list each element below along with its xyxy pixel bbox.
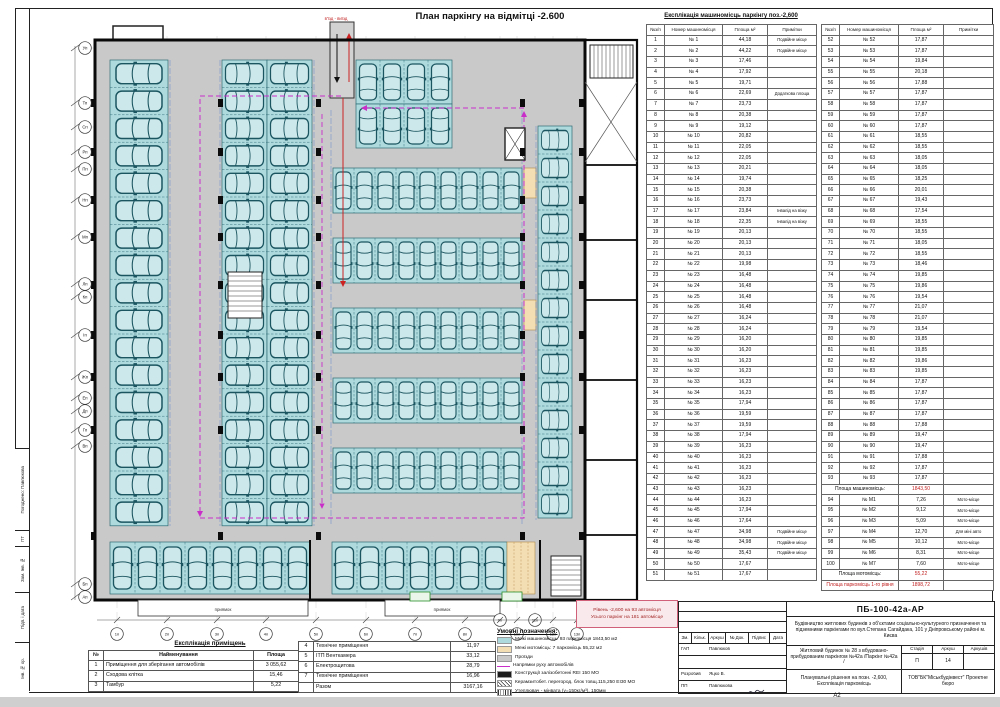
organization: ТОВ"БК"Міськбудінвест" Проектне бюро (901, 670, 994, 693)
table-row: 70№ 7018,55 (822, 228, 994, 239)
table-row: 27№ 2716,24 (647, 313, 817, 324)
table-row: 6Електрощитова28,79 (299, 662, 496, 672)
table-row: 73№ 7318,46 (822, 260, 994, 271)
table-row: 54№ 5419,84 (822, 57, 994, 68)
table-row: 96№ М35,09Мото-місце (822, 516, 994, 527)
table-row: 35№ 3517,94 (647, 399, 817, 410)
table-row: 37№ 3719,59 (647, 420, 817, 431)
side-stamp-cell: ПТ (15, 530, 29, 547)
legend-title: Умовні позначення: (497, 628, 682, 635)
table-row: 1№ 144,18Подвійне місце (647, 35, 817, 46)
table-row: 58№ 5817,87 (822, 99, 994, 110)
table-row: 94№ М17,26Мото-місце (822, 495, 994, 506)
table-row: 78№ 7821,07 (822, 313, 994, 324)
table-row: 14№ 1419,74 (647, 174, 817, 185)
legend-item: Межі мотомісць: 7 паркомісць 55,22 м2 (497, 646, 682, 653)
legend-item: Напрямки руху автомобілів (497, 664, 682, 669)
table-row: 49№ 4935,43Подвійне місце (647, 548, 817, 559)
role-label: Розробив (681, 672, 709, 681)
table-row: 97№ М412,70Для міні авто (822, 527, 994, 538)
table-row: 87№ 8717,87 (822, 409, 994, 420)
table-row: 65№ 6518,25 (822, 174, 994, 185)
table-row: 26№ 2616,48 (647, 302, 817, 313)
role-name: Павлюков (709, 647, 747, 656)
table-row: Площа мотомісць:55,22 (822, 570, 994, 581)
object-name: Житловий будинок № 28 з вбудовано-прибуд… (786, 646, 901, 670)
legend-item-text: Проїзди (515, 656, 533, 661)
table-row: 74№ 7419,85 (822, 270, 994, 281)
table-row: 57№ 5717,87 (822, 89, 994, 100)
table-row: 34№ 3416,23 (647, 388, 817, 399)
table-row: 28№ 2816,24 (647, 324, 817, 335)
table-row: №НайменуванняПлоща (89, 651, 299, 661)
table-row: 4№ 417,92 (647, 67, 817, 78)
table-row: 30№ 3016,20 (647, 345, 817, 356)
table-row: 93№ 9317,87 (822, 473, 994, 484)
table-row: Площа машиномісць:1843,50 (822, 484, 994, 495)
table-row: 36№ 3619,59 (647, 409, 817, 420)
table-row: 88№ 8817,88 (822, 420, 994, 431)
table-row: 2№ 244,22Подвійне місце (647, 46, 817, 57)
legend-item-text: Конструкції залізобетонні REI 150 МО (515, 672, 599, 677)
parking-table-part1: №з/пНомер машиномісцяПлоща м²Примітки1№ … (646, 24, 817, 581)
moto-swatch-icon (497, 646, 512, 653)
table-row: 77№ 7721,07 (822, 302, 994, 313)
table-row: 24№ 2416,48 (647, 281, 817, 292)
stamp-header: Кільк. (691, 633, 708, 644)
table-row: 64№ 6418,05 (822, 163, 994, 174)
table-row: 55№ 5520,18 (822, 67, 994, 78)
table-row: 100№ М77,60Мото-місце (822, 559, 994, 570)
stage-value: П (901, 654, 932, 670)
side-stamp-cell: Погоджено: Павлюкова (15, 448, 29, 531)
rooms-table-part1: №НайменуванняПлоща1Приміщення для зберіг… (88, 650, 299, 692)
table-row: 22№ 2219,98 (647, 260, 817, 271)
table-row: 33№ 3316,23 (647, 377, 817, 388)
table-row: 62№ 6218,55 (822, 142, 994, 153)
table-row: 61№ 6118,55 (822, 131, 994, 142)
legend-item-text: Керамзитобет. перегород. блок товщ.115,2… (515, 681, 635, 686)
sheet-number: 14 (932, 654, 963, 670)
table-row: 3№ 317,46 (647, 57, 817, 68)
table-row: 82№ 8219,86 (822, 356, 994, 367)
table-row: 76№ 7619,54 (822, 292, 994, 303)
table-row: 21№ 2120,13 (647, 249, 817, 260)
legend-item: Межі машиномісць: 93 паркомісця 1843,50 … (497, 637, 682, 644)
table-row: Разом3167,16 (299, 682, 496, 692)
stamp-header: Зм. (679, 633, 691, 644)
legend-item: Утеплювач - мінвата (γ=150кг/м³), 150мм (497, 689, 682, 696)
stamp-header: Підпис (748, 633, 769, 644)
parking-table-title: Експлікація машиномісць паркінгу поз.-2,… (645, 13, 817, 19)
level-line-1: Рівень -2,600 на 93 автомісця (593, 608, 660, 613)
table-row: 53№ 5317,87 (822, 46, 994, 57)
table-row: 48№ 4834,98Подвійне місце (647, 538, 817, 549)
table-row: 80№ 8019,85 (822, 334, 994, 345)
arrow-swatch-icon (497, 666, 510, 667)
table-row: 38№ 3817,94 (647, 431, 817, 442)
table-row: 20№ 2020,13 (647, 238, 817, 249)
title-block: ПБ-100-42а-АР Будівництво житлових будин… (678, 601, 995, 694)
table-row: 29№ 2916,20 (647, 334, 817, 345)
table-row: 6№ 622,69Додаткова площа (647, 89, 817, 100)
table-row: 10№ 1020,82 (647, 131, 817, 142)
table-row: 39№ 3916,23 (647, 441, 817, 452)
table-row: 72№ 7218,55 (822, 249, 994, 260)
table-row: 4Технічне приміщення11,97 (299, 642, 496, 652)
table-row: 63№ 6318,05 (822, 153, 994, 164)
signature-rows: ГАППавлюковРозробивЯцко В.ПППавлюкова (679, 644, 786, 693)
table-row: 7№ 723,73 (647, 99, 817, 110)
legend: Умовні позначення: Межі машиномісць: 93 … (497, 628, 682, 698)
table-row: 47№ 4734,98Подвійне місце (647, 527, 817, 538)
legend-item-text: Межі машиномісць: 93 паркомісця 1843,50 … (515, 638, 617, 643)
table-row: 52№ 5217,87 (822, 35, 994, 46)
concrete-swatch-icon (497, 671, 512, 678)
drawing-sheet-page: { "title": "План паркінгу на відмітці -2… (0, 0, 1000, 707)
table-row: 68№ 6817,54 (822, 206, 994, 217)
block-swatch-icon (497, 680, 512, 687)
table-row: №з/пНомер машиномісцяПлоща м²Примітки (822, 25, 994, 36)
document-code: ПБ-100-42а-АР (786, 602, 994, 617)
stamp-header-row: Зм.Кільк.Аркуш№ Док.ПідписДата (679, 633, 786, 644)
side-stamp-cell: Зам. Інв. № (15, 546, 29, 593)
table-row: 25№ 2516,48 (647, 292, 817, 303)
table-row: 60№ 6017,87 (822, 121, 994, 132)
table-row: 46№ 4617,64 (647, 516, 817, 527)
table-row: 45№ 4517,94 (647, 505, 817, 516)
role-label: ГАП (681, 647, 709, 656)
table-row: 40№ 4016,23 (647, 452, 817, 463)
table-row: 8№ 820,38 (647, 110, 817, 121)
table-row: 3Тамбур5,22 (89, 681, 299, 691)
legend-item-text: Напрямки руху автомобілів (513, 664, 574, 669)
table-row: 23№ 2316,48 (647, 270, 817, 281)
table-row: 31№ 3116,23 (647, 356, 817, 367)
page-edge (0, 697, 1000, 707)
table-row: 89№ 8919,47 (822, 431, 994, 442)
table-row: 5№ 519,71 (647, 78, 817, 89)
table-row: 15№ 1520,38 (647, 185, 817, 196)
table-row: №з/пНомер машиномісцяПлоща м²Примітки (647, 25, 817, 36)
legend-item: Проїзди (497, 655, 682, 662)
stamp-header: Дата (769, 633, 786, 644)
table-row: 12№ 1222,05 (647, 153, 817, 164)
table-row: 19№ 1920,13 (647, 228, 817, 239)
level-line-2: Усього паркінг на 181 автомісце (591, 615, 663, 620)
table-row: 85№ 8517,87 (822, 388, 994, 399)
table-row: 16№ 1623,73 (647, 196, 817, 207)
table-row: 11№ 1122,05 (647, 142, 817, 153)
table-row: 2Сходова клітка15,46 (89, 671, 299, 681)
parking-table-part2: №з/пНомер машиномісцяПлоща м²Примітки52№… (821, 24, 994, 591)
project-description: Будівництво житлових будинків з об'єктам… (786, 617, 994, 646)
table-row: 43№ 4316,23 (647, 484, 817, 495)
stamp-header: Аркуш (708, 633, 725, 644)
rooms-table-part2: 4Технічне приміщення11,975ІТП Венткамера… (298, 641, 496, 693)
table-row: 75№ 7519,86 (822, 281, 994, 292)
aisle-swatch-icon (497, 655, 512, 662)
table-row: 7Технічне приміщення16,96 (299, 672, 496, 682)
table-row: 41№ 4116,23 (647, 463, 817, 474)
legend-item-text: Межі мотомісць: 7 паркомісць 55,22 м2 (515, 647, 602, 652)
table-row: 91№ 9117,88 (822, 452, 994, 463)
table-row: 69№ 6918,55 (822, 217, 994, 228)
table-row: 51№ 5117,67 (647, 570, 817, 581)
table-row: 59№ 5917,87 (822, 110, 994, 121)
table-row: 44№ 4416,23 (647, 495, 817, 506)
insul-swatch-icon (497, 689, 512, 696)
table-row: Площа паркомісць 1-го рівня1898,72 (822, 580, 994, 591)
table-row: 79№ 7919,54 (822, 324, 994, 335)
plan-title: План паркінгу на відмітці -2.600 (355, 11, 625, 22)
table-row: 18№ 1822,35Інвалід на візку (647, 217, 817, 228)
table-row: 66№ 6620,01 (822, 185, 994, 196)
sheet-content: Планувальні рішення на позн. -2,600, Екс… (786, 670, 901, 693)
legend-item-text: Утеплювач - мінвата (γ=150кг/м³), 150мм (515, 690, 606, 695)
table-row: 50№ 5017,67 (647, 559, 817, 570)
role-name: Павлюкова (709, 684, 747, 693)
table-row: 9№ 919,12 (647, 121, 817, 132)
stamp-header: № Док. (725, 633, 748, 644)
table-row: 56№ 5617,88 (822, 78, 994, 89)
table-row: 67№ 6719,43 (822, 196, 994, 207)
table-row: 13№ 1320,21 (647, 163, 817, 174)
level-summary-box: Рівень -2,600 на 93 автомісця Усього пар… (576, 600, 678, 628)
role-label: ПП (681, 684, 709, 693)
table-row: 32№ 3216,23 (647, 367, 817, 378)
table-row: 92№ 9217,87 (822, 463, 994, 474)
table-row: 1Приміщення для зберігання автомобілів3 … (89, 661, 299, 671)
table-row: 5ІТП Венткамера33,12 (299, 652, 496, 662)
table-row: 42№ 4216,23 (647, 473, 817, 484)
table-row: 81№ 8119,85 (822, 345, 994, 356)
stage-label: Стадія (901, 646, 932, 654)
table-row: 99№ М68,31Мото-місце (822, 548, 994, 559)
sheets-label: Аркушів (963, 646, 994, 654)
rooms-table-title: Експлікація приміщень (110, 640, 310, 647)
table-row: 86№ 8617,87 (822, 399, 994, 410)
table-row: 71№ 7118,05 (822, 238, 994, 249)
legend-item: Керамзитобет. перегород. блок товщ.115,2… (497, 680, 682, 687)
sheets-count (963, 654, 994, 670)
stall-swatch-icon (497, 637, 512, 644)
role-name: Яцко В. (709, 672, 747, 681)
side-stamp-cell: Підп. і дата (15, 592, 29, 643)
table-row: 98№ М510,12Мото-місце (822, 538, 994, 549)
table-row: 95№ М29,12Мото-місце (822, 505, 994, 516)
table-row: 17№ 1723,84Інвалід на візку (647, 206, 817, 217)
table-row: 90№ 9019,47 (822, 441, 994, 452)
legend-item: Конструкції залізобетонні REI 150 МО (497, 671, 682, 678)
sheet-label: Аркуш (932, 646, 963, 654)
table-row: 83№ 8319,85 (822, 367, 994, 378)
signature-icon (747, 683, 767, 693)
table-row: 84№ 8417,87 (822, 377, 994, 388)
side-stamp-cell: Інв. № ор. (15, 642, 29, 693)
